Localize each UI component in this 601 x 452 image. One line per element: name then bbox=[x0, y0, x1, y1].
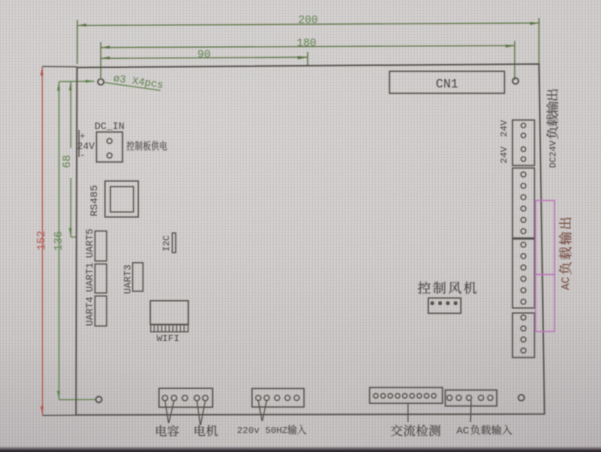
svg-text:ø3 X4pcs: ø3 X4pcs bbox=[112, 73, 164, 92]
svg-text:220v 50HZ: 220v 50HZ bbox=[237, 425, 288, 436]
svg-text:24V: 24V bbox=[499, 120, 510, 137]
svg-text:UART3: UART3 bbox=[123, 264, 134, 294]
svg-text:180: 180 bbox=[297, 38, 317, 50]
svg-text:UART1: UART1 bbox=[85, 262, 96, 292]
svg-text:68: 68 bbox=[62, 155, 74, 168]
svg-text:-: - bbox=[80, 151, 85, 161]
svg-text:24V: 24V bbox=[499, 146, 510, 163]
svg-text:AC: AC bbox=[561, 276, 573, 290]
svg-text:90: 90 bbox=[197, 50, 210, 62]
svg-text:152: 152 bbox=[37, 231, 49, 251]
svg-text:200: 200 bbox=[298, 15, 318, 27]
svg-text:DC24V: DC24V bbox=[548, 140, 559, 168]
svg-text:136: 136 bbox=[54, 231, 66, 251]
svg-text:RS485: RS485 bbox=[89, 185, 101, 217]
svg-text:UART5: UART5 bbox=[85, 228, 96, 258]
svg-text:I2C: I2C bbox=[162, 235, 172, 252]
svg-text:AC: AC bbox=[457, 426, 470, 438]
svg-text:WIFI: WIFI bbox=[157, 333, 180, 344]
svg-text:UART4: UART4 bbox=[85, 296, 96, 326]
svg-text:CN1: CN1 bbox=[436, 78, 459, 92]
